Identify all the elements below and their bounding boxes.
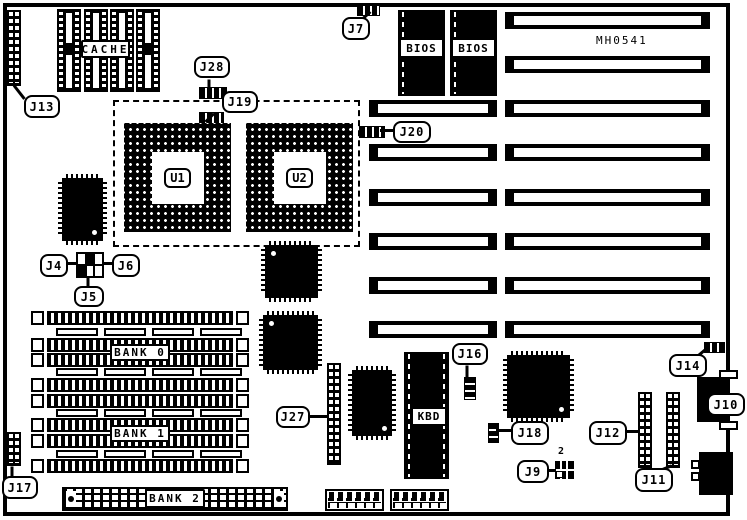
slot-opening <box>514 193 701 202</box>
pin-strip <box>356 436 388 440</box>
isa-slot-long-6 <box>505 233 710 250</box>
bank2-mount-right <box>274 491 284 507</box>
label-u1: U1 <box>164 168 190 188</box>
simm-clip <box>31 353 44 367</box>
pin-header-j27 <box>327 363 341 465</box>
plcc-chip-right <box>507 355 570 418</box>
simm-module <box>200 409 242 417</box>
cache-chip-1 <box>57 9 81 92</box>
simm-module <box>152 368 194 376</box>
mount-hole <box>276 496 282 502</box>
pin-strip <box>261 249 265 294</box>
pin-strip <box>66 174 99 178</box>
simm-module <box>56 450 98 458</box>
jumper-j20 <box>359 126 385 138</box>
pin-strip <box>356 366 388 370</box>
label-j4: J4 <box>40 254 68 277</box>
pin-header-j11 <box>666 392 680 468</box>
pin-strip <box>348 374 352 432</box>
label-j13: J13 <box>24 95 60 118</box>
keyboard-connector-tab-top <box>719 370 738 379</box>
simm-module <box>56 328 98 336</box>
motherboard-diagram: J13 CACHE J28 J19 J7 BIOS BIOS MH0541 U1… <box>0 0 747 520</box>
slot-opening <box>378 325 488 334</box>
pin-strip <box>511 351 566 355</box>
label-u2: U2 <box>286 168 312 188</box>
power-connector-2 <box>390 489 449 511</box>
isa-slot-long-8 <box>505 321 710 338</box>
label-j11: J11 <box>635 468 673 492</box>
slot-opening <box>514 148 701 157</box>
jumper-block-j4-j5-j6 <box>76 252 104 278</box>
leader-j16 <box>466 366 469 380</box>
simm-clip <box>31 394 44 408</box>
simm-clip <box>236 418 249 432</box>
bank2-mount-left <box>66 491 76 507</box>
power-connector-1 <box>325 489 384 511</box>
leader-j28 <box>208 80 211 90</box>
power-cells <box>393 502 446 508</box>
simm-module <box>152 328 194 336</box>
pin-strip <box>269 298 314 302</box>
label-j20: J20 <box>393 121 431 143</box>
isa-slot-long-4 <box>505 144 710 161</box>
cpu-socket-u1-center: U1 <box>152 152 204 204</box>
pin-strip <box>267 311 314 315</box>
simm-clip <box>236 434 249 448</box>
simm-module <box>104 328 146 336</box>
board-model-text: MH0541 <box>596 34 676 48</box>
pin-strip <box>318 249 322 294</box>
label-j18: J18 <box>511 421 549 445</box>
keyboard-connector-tab-bottom <box>719 421 738 430</box>
isa-slot-long-5 <box>505 189 710 206</box>
pin-strip <box>503 359 507 414</box>
isa-slot-short-2 <box>369 144 497 161</box>
simm-module <box>200 368 242 376</box>
simm-module <box>200 450 242 458</box>
leader-j27 <box>309 415 327 418</box>
cpu-socket-u2: U2 <box>246 123 353 232</box>
simm-module <box>104 368 146 376</box>
qfp-chip-2 <box>263 315 318 370</box>
simm-socket-row <box>47 311 233 325</box>
label-bank1: BANK 1 <box>110 425 170 442</box>
label-bank0: BANK 0 <box>110 344 170 361</box>
cache-chip-4 <box>136 9 160 92</box>
label-j9: J9 <box>517 460 549 483</box>
pin-strip <box>58 182 62 237</box>
simm-clip <box>236 338 249 352</box>
label-j27: J27 <box>276 406 310 428</box>
simm-module <box>152 409 194 417</box>
simm-module <box>104 450 146 458</box>
label-j12: J12 <box>589 421 627 445</box>
label-j14: J14 <box>669 354 707 377</box>
slot-opening <box>514 104 701 113</box>
cpu-socket-u2-center: U2 <box>274 152 326 204</box>
simm-socket-row <box>47 459 233 473</box>
slot-opening <box>514 237 701 246</box>
isa-slot-short-4 <box>369 233 497 250</box>
isa-slot-long-3 <box>505 100 710 117</box>
pin-strip <box>392 374 396 432</box>
label-bank2: BANK 2 <box>145 489 205 508</box>
label-j6: J6 <box>112 254 140 277</box>
slot-opening <box>378 237 488 246</box>
qfp-chip-1 <box>265 245 318 298</box>
slot-opening <box>514 16 701 25</box>
simm-module <box>200 328 242 336</box>
simm-module <box>56 368 98 376</box>
simm-socket-row <box>47 394 233 408</box>
jumper-j14 <box>704 342 725 353</box>
pin-strip <box>269 241 314 245</box>
label-j17: J17 <box>2 476 38 499</box>
isa-slot-short-3 <box>369 189 497 206</box>
isa-slot-short-1 <box>369 100 497 117</box>
pin1-square <box>556 471 563 478</box>
isa-slot-short-5 <box>369 277 497 294</box>
power-inlet-tab-1 <box>691 460 700 469</box>
power-divider <box>393 498 446 501</box>
pin1-dot <box>559 407 564 412</box>
simm-module <box>104 409 146 417</box>
pin-strip <box>259 319 263 366</box>
plcc-chip-left <box>62 178 103 241</box>
jumper-j16 <box>464 377 476 400</box>
j9-pin2-text: 2 <box>558 446 564 457</box>
pin-strip <box>66 241 99 245</box>
simm-clip <box>236 459 249 473</box>
slot-opening <box>514 281 701 290</box>
leader-j18 <box>496 429 511 432</box>
isa-slot-long-7 <box>505 277 710 294</box>
jumper-j18 <box>488 423 499 443</box>
leader-j20 <box>380 129 393 132</box>
isa-slot-long-2 <box>505 56 710 73</box>
simm-clip <box>31 311 44 325</box>
label-j10: J10 <box>707 393 745 416</box>
cpu-socket-u1: U1 <box>124 123 231 232</box>
label-j19: J19 <box>222 91 258 113</box>
mount-hole <box>68 496 74 502</box>
slot-opening <box>378 193 488 202</box>
jumper-j9 <box>555 461 574 479</box>
pin-strip <box>570 359 574 414</box>
leader-j4 <box>67 262 77 265</box>
pin-strip <box>318 319 322 366</box>
simm-module <box>152 450 194 458</box>
power-cells <box>328 502 381 508</box>
simm-clip <box>236 311 249 325</box>
power-divider <box>328 498 381 501</box>
simm-socket-row <box>47 378 233 392</box>
pin-strip <box>103 182 107 237</box>
power-inlet-tab-2 <box>691 472 700 481</box>
pin-header-j13 <box>7 10 21 86</box>
pin1-dot <box>92 230 97 235</box>
label-cache: CACHE <box>81 40 130 58</box>
slot-opening <box>514 60 701 69</box>
simm-clip <box>236 353 249 367</box>
label-j5: J5 <box>74 286 104 307</box>
label-bios-right: BIOS <box>451 38 496 58</box>
simm-clip <box>31 434 44 448</box>
simm-clip <box>31 418 44 432</box>
plcc-chip-mid <box>352 370 392 436</box>
pin-strip <box>267 370 314 374</box>
slot-opening <box>378 104 488 113</box>
simm-clip <box>31 378 44 392</box>
slot-opening <box>378 281 488 290</box>
simm-clip <box>236 394 249 408</box>
label-j7: J7 <box>342 17 370 40</box>
slot-opening <box>378 148 488 157</box>
pin-header-j17 <box>7 432 21 466</box>
simm-module <box>56 409 98 417</box>
slot-opening <box>514 325 701 334</box>
label-j28: J28 <box>194 56 230 78</box>
isa-slot-long-1 <box>505 12 710 29</box>
pin1-dot <box>271 251 276 256</box>
label-bios-left: BIOS <box>399 38 444 58</box>
isa-slot-short-6 <box>369 321 497 338</box>
power-inlet-connector <box>699 452 733 495</box>
pin1-dot <box>382 426 387 431</box>
pin-header-j12 <box>638 392 652 468</box>
label-j16: J16 <box>452 343 488 365</box>
simm-clip <box>31 338 44 352</box>
simm-clip <box>31 459 44 473</box>
pin1-dot <box>269 321 274 326</box>
label-kbd: KBD <box>411 407 447 426</box>
simm-clip <box>236 378 249 392</box>
